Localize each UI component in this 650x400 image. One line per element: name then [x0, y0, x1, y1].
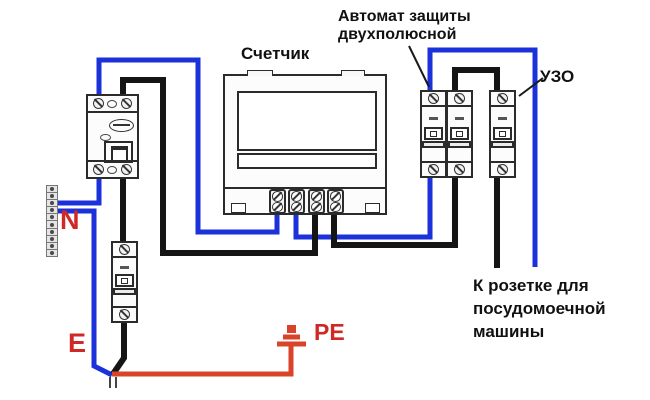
earth-label: E: [68, 328, 86, 359]
earth-wire-junction-to-pe: [112, 346, 291, 374]
breaker-toggle: [424, 127, 443, 140]
terminal-screw-icon: [93, 98, 104, 109]
terminal-screw-icon: [497, 164, 508, 175]
module-vent-slot: [429, 117, 438, 120]
breaker-toggle: [493, 127, 512, 140]
breaker-toggle: [115, 274, 134, 287]
terminal-screw-icon: [428, 164, 439, 175]
module-vent-slot: [120, 266, 129, 269]
indicator-oval-icon: [107, 166, 117, 174]
busbar-terminal: [46, 249, 58, 257]
meter-display-window: [237, 91, 377, 151]
breaker-label-line1: Автомат защиты: [338, 8, 471, 26]
electric-meter-device: [223, 74, 387, 215]
meter-terminal-4: [327, 189, 344, 214]
module-vent-slot: [498, 117, 507, 120]
module-vent-slot: [455, 117, 464, 120]
terminal-screw-icon: [497, 93, 508, 104]
main-rcd-device: [86, 94, 139, 179]
neutral-busbar: [46, 186, 58, 257]
breaker-handle-bar: [422, 141, 445, 148]
outlet-label-line1: К розетке для: [473, 274, 606, 297]
terminal-screw-icon: [311, 202, 322, 213]
module-bottom-terminal: [448, 161, 471, 176]
terminal-screw-icon: [50, 201, 54, 205]
module-bottom-terminal: [113, 306, 136, 321]
terminal-screw-icon: [291, 202, 302, 213]
module-top-terminal: [422, 92, 445, 107]
meter-terminal-divider: [225, 187, 385, 189]
phase-wire-lower-breaker-to-junction: [113, 323, 124, 374]
module-top-terminal: [448, 92, 471, 107]
breaker-label-pointer-line: [409, 46, 429, 87]
uzo-label: УЗО: [540, 67, 574, 87]
meter-terminal-2: [288, 189, 305, 214]
breaker-handle-bar: [113, 288, 136, 295]
terminal-screw-icon: [428, 93, 439, 104]
lever-icon: [430, 131, 437, 137]
lever-icon: [121, 278, 128, 284]
two-pole-breaker-pole-1: [420, 90, 447, 178]
lever-icon: [499, 131, 506, 137]
rcd-bottom-terminals: [88, 160, 137, 177]
meter-nameplate-bar: [237, 153, 377, 169]
terminal-screw-icon: [121, 98, 132, 109]
meter-seal-screw: [365, 203, 380, 213]
terminal-screw-icon: [119, 244, 130, 255]
breaker-handle-bar: [448, 141, 471, 148]
terminal-screw-icon: [50, 194, 54, 198]
neutral-label: N: [60, 205, 80, 236]
terminal-screw-icon: [454, 93, 465, 104]
breaker-label-line2: двухполюсной: [338, 26, 471, 44]
terminal-screw-icon: [119, 309, 130, 320]
neutral-wire-rcd-to-busbar: [56, 178, 99, 203]
terminal-screw-icon: [272, 202, 283, 213]
terminal-screw-icon: [50, 230, 54, 234]
outlet-label: К розетке для посудомоечной машины: [473, 274, 606, 343]
terminal-screw-icon: [50, 215, 54, 219]
outlet-label-line3: машины: [473, 320, 606, 343]
uzo-device: [489, 90, 516, 178]
rcd-top-terminals: [88, 96, 137, 113]
terminal-screw-icon: [50, 187, 54, 191]
terminal-screw-icon: [330, 202, 341, 213]
single-pole-breaker: [111, 241, 138, 323]
wiring-diagram: Счетчик Автомат защиты двухполюсной УЗО …: [0, 0, 650, 400]
terminal-screw-icon: [50, 237, 54, 241]
terminal-screw-icon: [50, 223, 54, 227]
test-button-icon: [109, 119, 134, 132]
terminal-screw-icon: [50, 251, 54, 255]
lever-icon: [456, 131, 463, 137]
terminal-screw-icon: [50, 244, 54, 248]
outlet-label-line2: посудомоечной: [473, 297, 606, 320]
module-top-terminal: [491, 92, 514, 107]
meter-terminal-3: [308, 189, 325, 214]
breaker-handle-bar: [491, 141, 514, 148]
terminal-screw-icon: [50, 208, 54, 212]
terminal-screw-icon: [272, 191, 283, 202]
meter-label: Счетчик: [241, 44, 309, 64]
breaker-toggle: [450, 127, 469, 140]
indicator-oval-icon: [107, 100, 117, 108]
terminal-screw-icon: [311, 191, 322, 202]
terminal-screw-icon: [330, 191, 341, 202]
terminal-screw-icon: [454, 164, 465, 175]
pe-label: PE: [314, 319, 345, 346]
terminal-screw-icon: [291, 191, 302, 202]
terminal-screw-icon: [93, 164, 104, 175]
meter-seal-screw: [231, 203, 246, 213]
terminal-screw-icon: [121, 164, 132, 175]
phase-jumper-breaker-to-uzo: [455, 70, 497, 90]
module-bottom-terminal: [422, 161, 445, 176]
rcd-body: [88, 113, 137, 166]
two-pole-breaker-pole-2: [446, 90, 473, 178]
led-indicator-icon: [100, 134, 111, 141]
meter-terminal-1: [269, 189, 286, 214]
module-bottom-terminal: [491, 161, 514, 176]
meter-mount-tab: [341, 70, 365, 76]
meter-mount-tab: [247, 70, 273, 76]
module-top-terminal: [113, 243, 136, 258]
breaker-label: Автомат защиты двухполюсной: [338, 8, 471, 44]
